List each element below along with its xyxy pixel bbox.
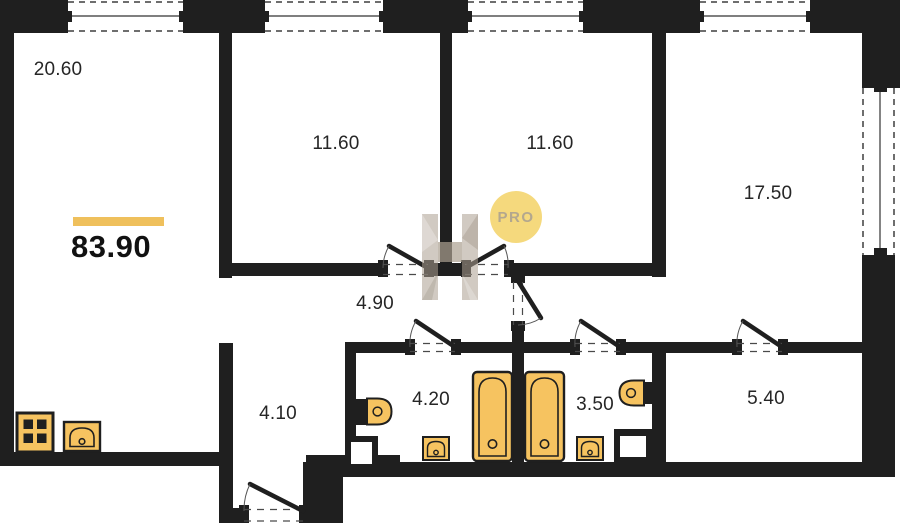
room-area-label-entry-hall: 4.10 (259, 403, 297, 425)
pro-watermark-badge: PRO (490, 191, 542, 243)
room-area-label-bedroom-1: 11.60 (312, 133, 359, 155)
bathtub-icon (525, 372, 564, 461)
fixtures (17, 372, 657, 461)
toilet-icon (620, 381, 658, 406)
room-area-label-storage: 5.40 (747, 388, 785, 410)
room-area-label-bathroom-1: 4.20 (412, 389, 450, 411)
floor-plan: 20.60 11.60 11.60 17.50 4.90 4.10 4.20 3… (0, 0, 900, 523)
room-area-label-bedroom-2: 11.60 (526, 133, 573, 155)
room-area-label-bathroom-2: 3.50 (576, 394, 614, 416)
kitchen-sink-icon (64, 422, 100, 451)
pro-watermark-label: PRO (497, 209, 534, 226)
room-area-label-living-room: 20.60 (34, 59, 83, 81)
window-dashed-lines (68, 2, 894, 255)
toilet-icon (352, 399, 392, 426)
total-area-accent-line (73, 217, 164, 226)
room-area-label-hallway: 4.90 (356, 293, 394, 315)
bathroom-sink-icon (423, 437, 449, 460)
room-area-label-living-area: 17.50 (744, 183, 793, 205)
total-area-label: 83.90 (71, 229, 151, 265)
windows (63, 2, 894, 257)
bathtub-icon (473, 372, 512, 461)
bathroom-sink-icon (577, 437, 603, 460)
stove-icon (17, 413, 53, 452)
